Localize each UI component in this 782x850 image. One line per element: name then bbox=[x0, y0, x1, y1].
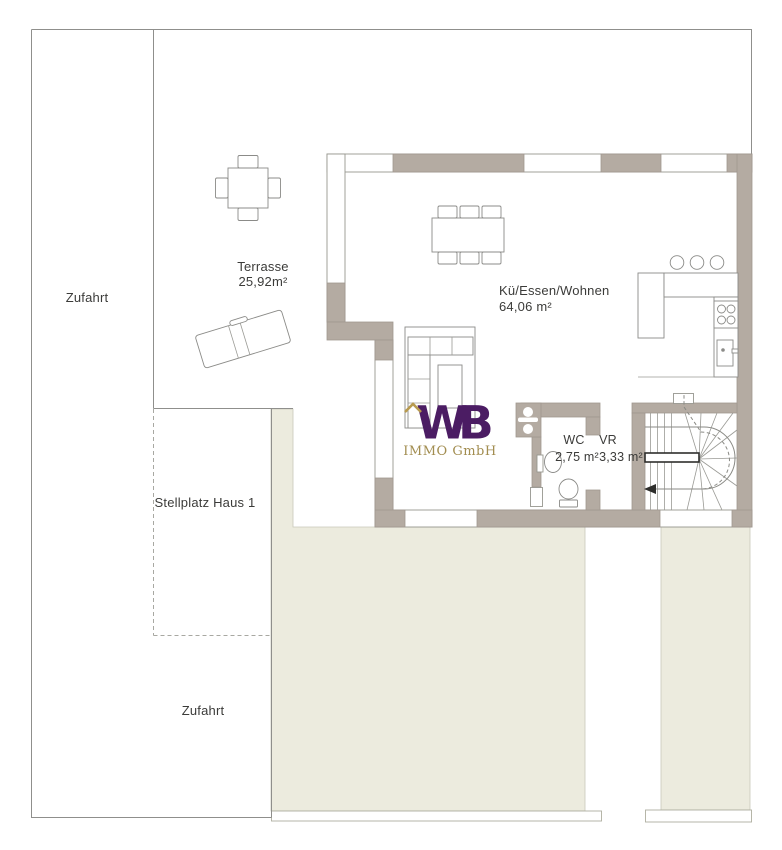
roof-icon bbox=[403, 402, 423, 414]
entrance-path-surface bbox=[661, 527, 750, 810]
label-wc-size: 2,75 m² bbox=[555, 450, 599, 464]
label-zufahrt-bottom: Zufahrt bbox=[182, 703, 225, 718]
curb-step-left bbox=[272, 811, 602, 821]
kitchen-counter-icon bbox=[638, 273, 738, 377]
floor-plan-drawing bbox=[0, 0, 782, 850]
label-terrasse: Terrasse 25,92m² bbox=[237, 259, 288, 289]
label-living-room: Kü/Essen/Wohnen 64,06 m² bbox=[499, 283, 609, 315]
label-vr-size: 3,33 m² bbox=[599, 450, 643, 464]
living-name: Kü/Essen/Wohnen bbox=[499, 283, 609, 299]
label-stellplatz: Stellplatz Haus 1 bbox=[155, 495, 256, 510]
wall-niche bbox=[537, 455, 543, 472]
wc-door-icon bbox=[531, 488, 543, 507]
east-wall bbox=[737, 154, 752, 527]
washbasin-cabinet-icon bbox=[516, 403, 541, 437]
curb-step-right bbox=[646, 810, 752, 822]
dining-table-icon bbox=[432, 206, 504, 264]
sun-lounger-icon bbox=[194, 306, 291, 369]
toilet-icon bbox=[559, 479, 578, 507]
label-wc: WC bbox=[563, 433, 584, 447]
living-size: 64,06 m² bbox=[499, 299, 609, 315]
terrasse-size: 25,92m² bbox=[237, 274, 288, 289]
bar-stools-icon bbox=[670, 256, 724, 270]
cooktop-icon bbox=[714, 301, 738, 328]
floor-plan-canvas: Zufahrt Terrasse 25,92m² Kü/Essen/Wohnen… bbox=[0, 0, 782, 850]
stair-rail-bar bbox=[645, 453, 699, 462]
label-vr: VR bbox=[599, 433, 617, 447]
terrace-table-icon bbox=[216, 156, 281, 221]
north-facade-band bbox=[327, 154, 752, 172]
parking-space-boundary bbox=[154, 409, 272, 636]
label-zufahrt-left: Zufahrt bbox=[66, 290, 109, 305]
terrasse-name: Terrasse bbox=[237, 259, 288, 274]
company-logo: WB IMMO GmbH bbox=[403, 402, 497, 459]
